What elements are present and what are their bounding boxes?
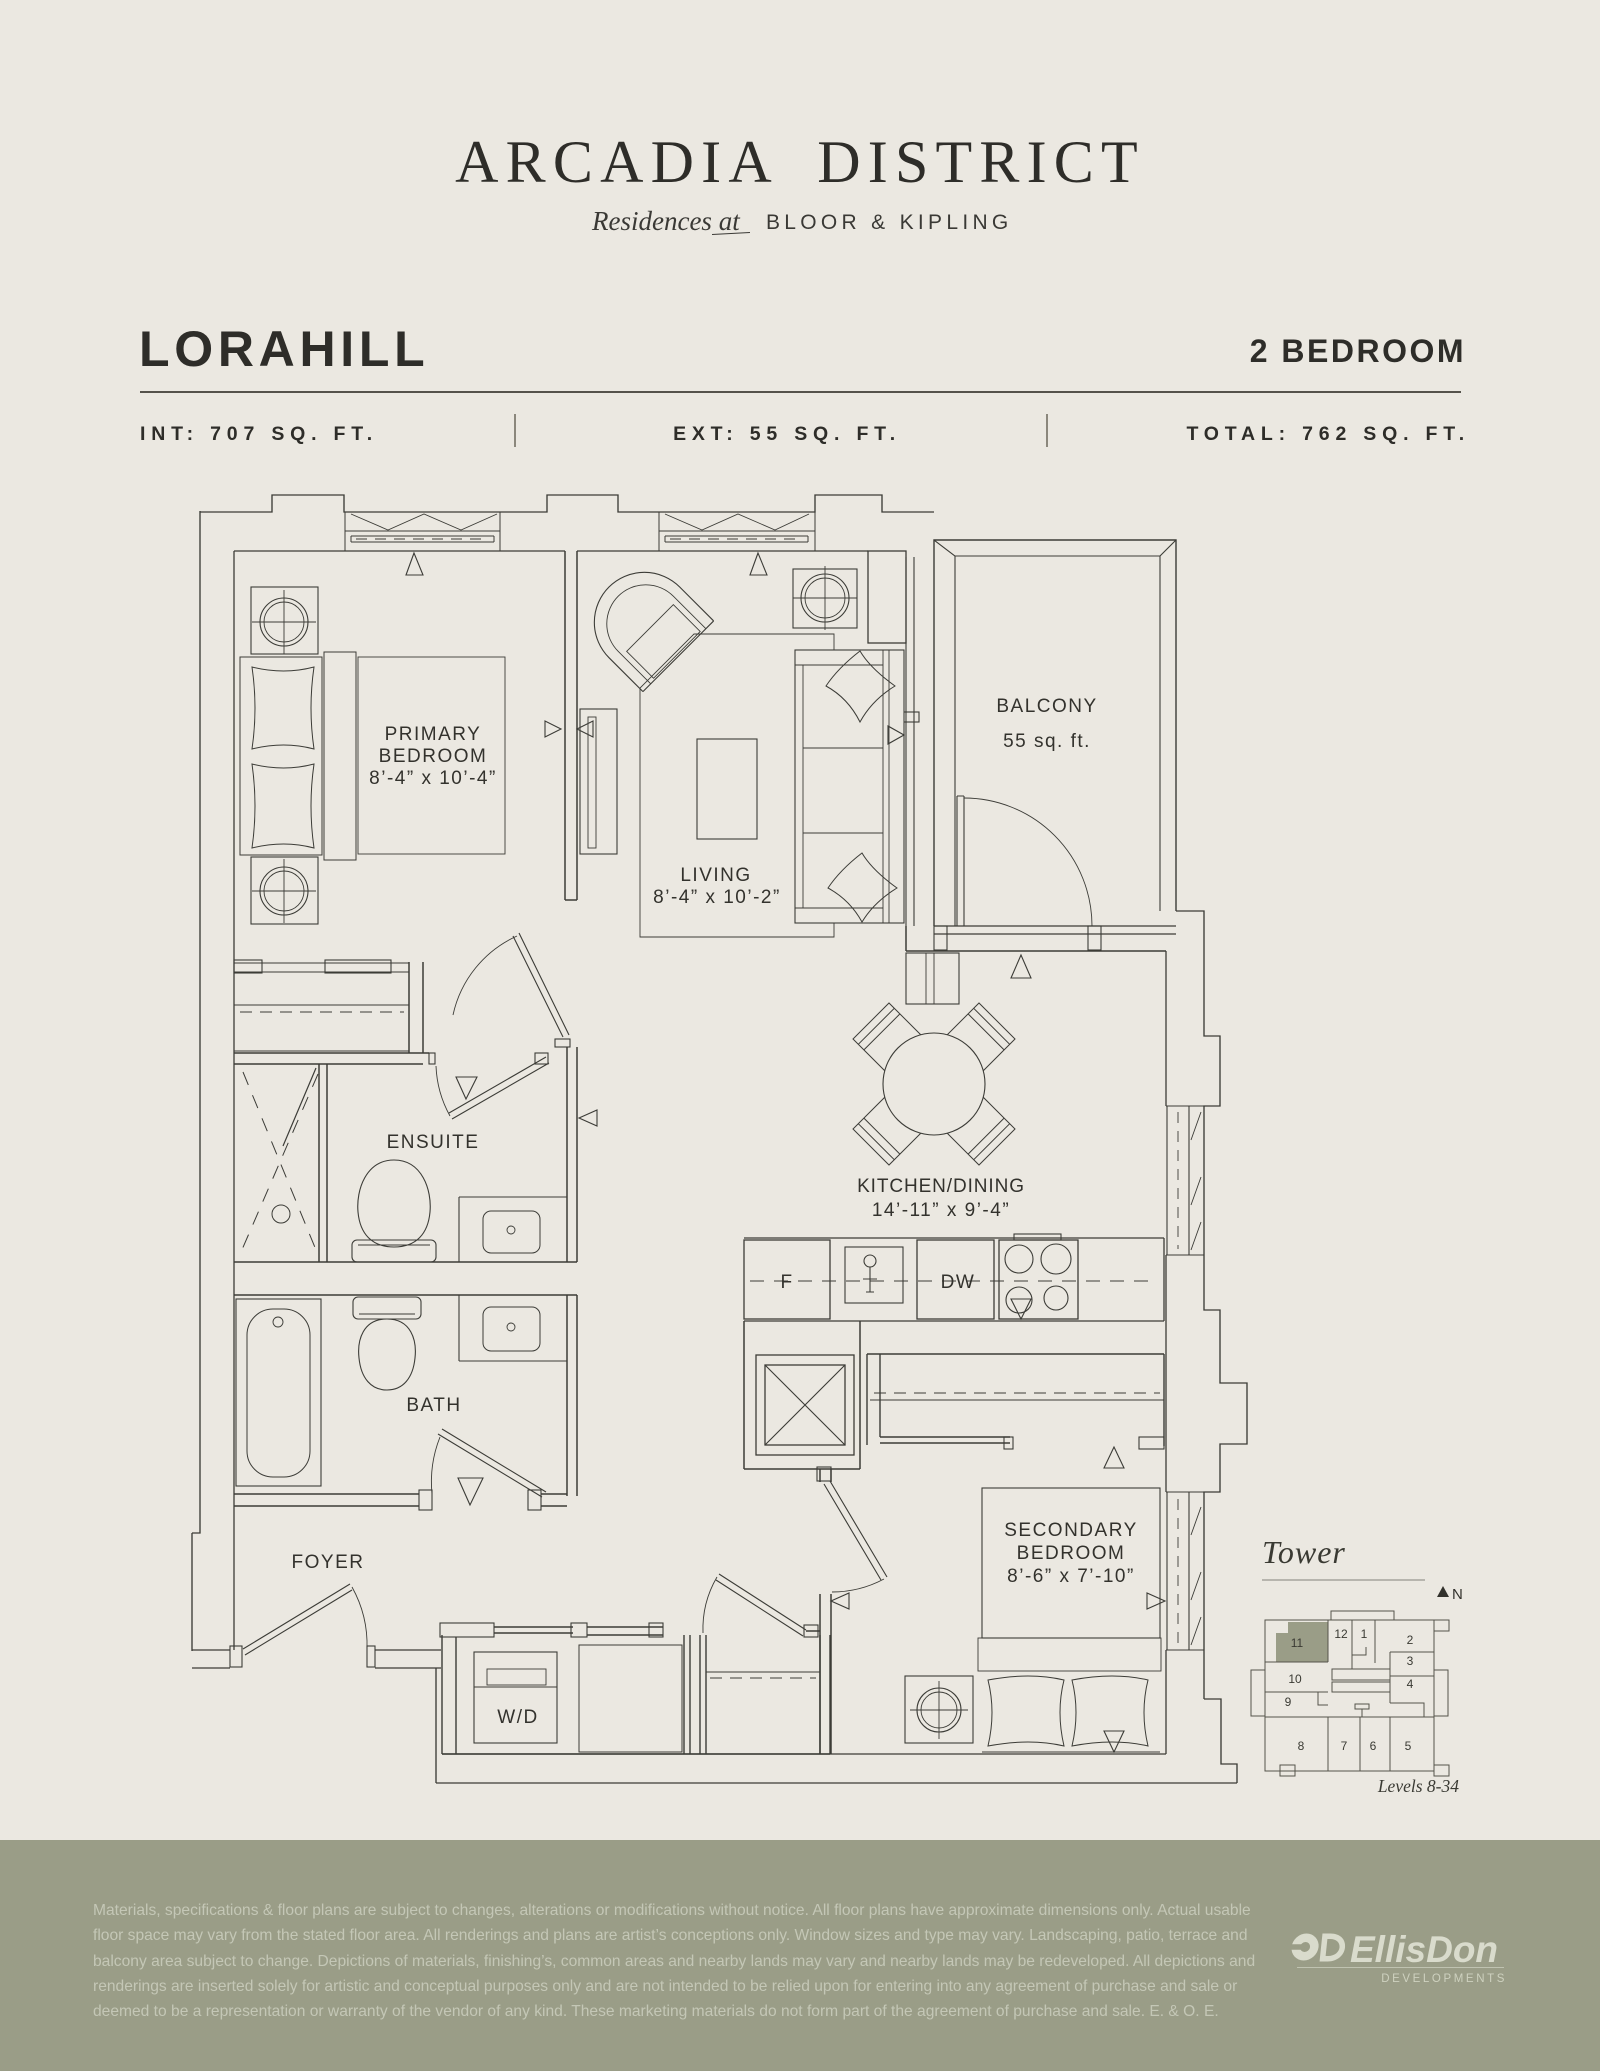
svg-text:ENSUITE: ENSUITE xyxy=(387,1132,480,1153)
svg-text:9: 9 xyxy=(1285,1695,1292,1709)
svg-text:BATH: BATH xyxy=(406,1395,461,1416)
svg-text:N: N xyxy=(1452,1586,1463,1603)
svg-text:8’-6” x 7’-10”: 8’-6” x 7’-10” xyxy=(1007,1566,1135,1587)
svg-text:4: 4 xyxy=(1407,1677,1414,1691)
svg-text:7: 7 xyxy=(1341,1739,1348,1753)
svg-text:8’-4” x 10’-4”: 8’-4” x 10’-4” xyxy=(369,768,497,789)
svg-text:DEVELOPMENTS: DEVELOPMENTS xyxy=(1381,1973,1507,1985)
svg-text:KITCHEN/DINING: KITCHEN/DINING xyxy=(857,1176,1025,1197)
svg-text:5: 5 xyxy=(1405,1739,1412,1753)
svg-text:55 sq. ft.: 55 sq. ft. xyxy=(1003,731,1091,752)
svg-text:F: F xyxy=(780,1272,793,1293)
svg-text:12: 12 xyxy=(1334,1627,1348,1641)
svg-text:8: 8 xyxy=(1298,1739,1305,1753)
svg-text:DW: DW xyxy=(941,1272,976,1293)
svg-text:BALCONY: BALCONY xyxy=(996,696,1097,717)
svg-text:3: 3 xyxy=(1407,1654,1414,1668)
svg-text:LIVING: LIVING xyxy=(680,865,751,886)
svg-text:1: 1 xyxy=(1361,1627,1368,1641)
svg-text:SECONDARY: SECONDARY xyxy=(1004,1520,1138,1541)
svg-text:PRIMARY: PRIMARY xyxy=(385,724,482,745)
svg-text:6: 6 xyxy=(1370,1739,1377,1753)
svg-text:2: 2 xyxy=(1407,1633,1414,1647)
svg-text:10: 10 xyxy=(1288,1672,1302,1686)
svg-text:8’-4” x 10’-2”: 8’-4” x 10’-2” xyxy=(653,887,781,908)
svg-text:EllisDon: EllisDon xyxy=(1350,1929,1498,1970)
svg-text:FOYER: FOYER xyxy=(292,1552,365,1573)
svg-text:Levels 8-34: Levels 8-34 xyxy=(1377,1776,1459,1796)
svg-text:14’-11” x 9’-4”: 14’-11” x 9’-4” xyxy=(872,1200,1010,1221)
svg-text:W/D: W/D xyxy=(497,1707,538,1728)
svg-text:BEDROOM: BEDROOM xyxy=(379,746,488,767)
svg-text:11: 11 xyxy=(1291,1636,1304,1650)
svg-text:Tower: Tower xyxy=(1262,1534,1346,1570)
svg-text:BEDROOM: BEDROOM xyxy=(1017,1543,1126,1564)
